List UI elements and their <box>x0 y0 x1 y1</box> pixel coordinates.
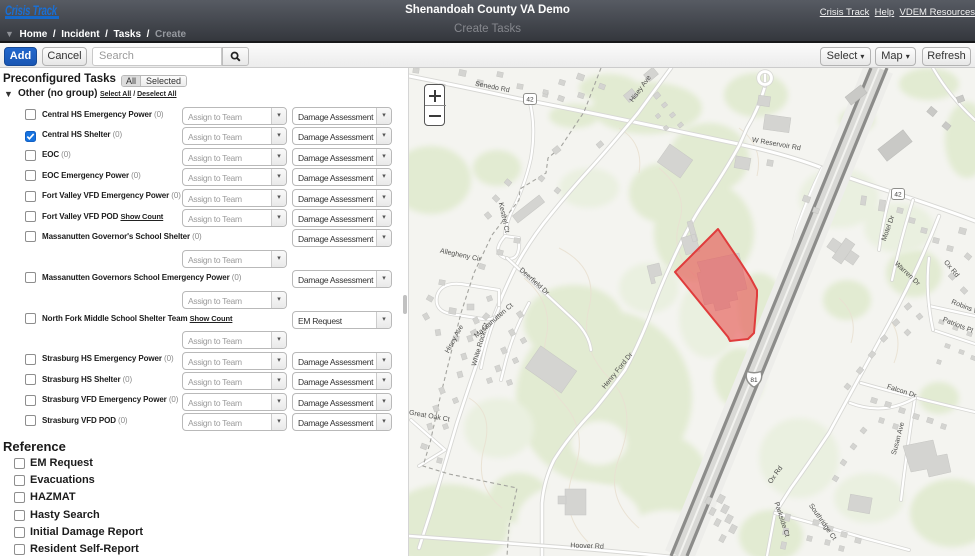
svg-text:42: 42 <box>894 192 902 199</box>
svg-text:42: 42 <box>526 97 534 104</box>
svg-text:Hoover Rd: Hoover Rd <box>570 542 604 550</box>
svg-text:81: 81 <box>750 377 758 384</box>
